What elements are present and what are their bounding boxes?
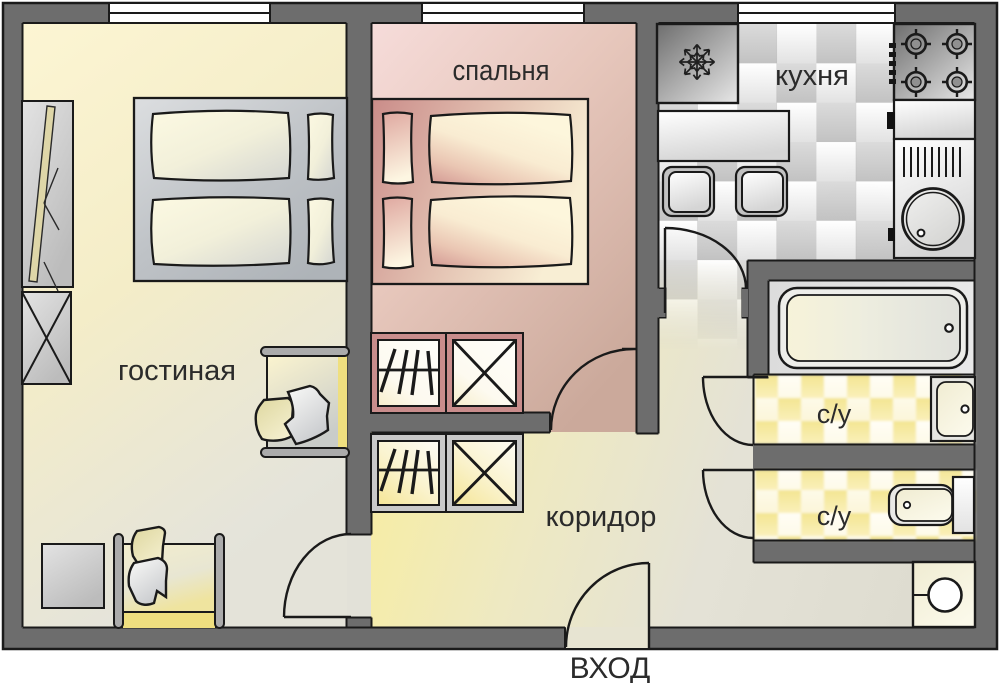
svg-text:спальня: спальня	[453, 55, 550, 87]
svg-text:коридор: коридор	[546, 501, 657, 533]
svg-text:с/у: с/у	[817, 399, 852, 429]
svg-text:гостиная: гостиная	[118, 355, 236, 387]
svg-text:ВХОД: ВХОД	[570, 652, 651, 683]
svg-text:кухня: кухня	[775, 60, 849, 92]
svg-text:с/у: с/у	[817, 501, 852, 531]
